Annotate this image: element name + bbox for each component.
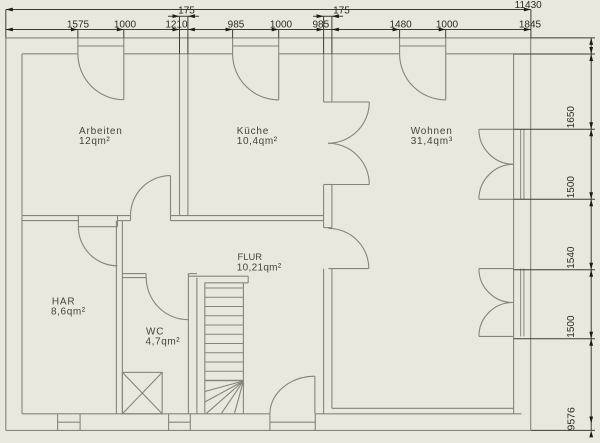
svg-text:1000: 1000 bbox=[436, 20, 459, 31]
svg-text:985: 985 bbox=[312, 20, 329, 31]
svg-text:1650: 1650 bbox=[566, 106, 577, 129]
svg-text:FLUR: FLUR bbox=[238, 251, 263, 262]
svg-text:1000: 1000 bbox=[270, 20, 293, 31]
svg-text:1210: 1210 bbox=[165, 20, 188, 31]
svg-text:985: 985 bbox=[228, 20, 245, 31]
svg-text:175: 175 bbox=[333, 5, 350, 16]
svg-text:1575: 1575 bbox=[67, 20, 90, 31]
svg-text:1845: 1845 bbox=[519, 20, 542, 31]
svg-text:31,4qm³: 31,4qm³ bbox=[411, 136, 453, 147]
svg-text:1000: 1000 bbox=[114, 20, 137, 31]
svg-text:12qm²: 12qm² bbox=[79, 136, 110, 147]
svg-text:11430: 11430 bbox=[515, 0, 543, 11]
svg-text:10,21qm²: 10,21qm² bbox=[237, 263, 282, 274]
svg-text:1500: 1500 bbox=[566, 315, 577, 338]
svg-text:10,4qm²: 10,4qm² bbox=[237, 136, 278, 147]
svg-text:9576: 9576 bbox=[566, 407, 578, 431]
svg-text:8,6qm²: 8,6qm² bbox=[51, 307, 86, 318]
svg-text:1500: 1500 bbox=[566, 176, 577, 199]
svg-text:4,7qm²: 4,7qm² bbox=[146, 336, 181, 347]
svg-text:1540: 1540 bbox=[566, 246, 577, 269]
svg-text:1480: 1480 bbox=[389, 20, 412, 31]
svg-text:175: 175 bbox=[178, 5, 195, 16]
